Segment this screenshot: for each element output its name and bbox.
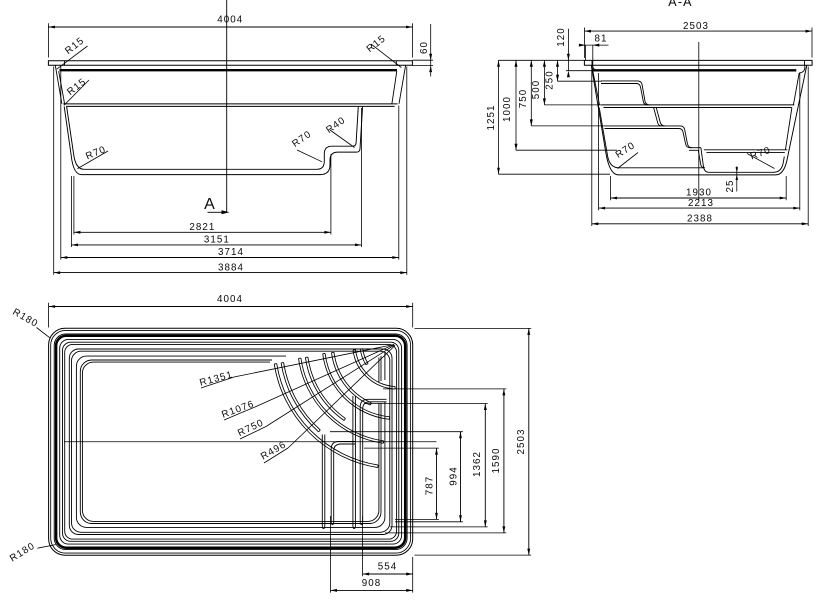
svg-text:3151: 3151 <box>204 235 230 246</box>
svg-text:A-A: A-A <box>668 0 692 9</box>
svg-text:3884: 3884 <box>218 262 244 273</box>
svg-text:2821: 2821 <box>189 222 215 233</box>
svg-text:3714: 3714 <box>218 247 244 258</box>
svg-text:1000: 1000 <box>502 96 513 122</box>
svg-text:81: 81 <box>595 34 608 45</box>
svg-text:2503: 2503 <box>683 21 709 32</box>
svg-text:2388: 2388 <box>687 214 713 225</box>
svg-text:4004: 4004 <box>217 294 243 305</box>
svg-text:1590: 1590 <box>491 448 502 474</box>
svg-text:500: 500 <box>531 80 542 100</box>
svg-text:250: 250 <box>545 70 556 90</box>
svg-text:554: 554 <box>378 562 398 573</box>
svg-text:994: 994 <box>449 466 460 486</box>
svg-text:1362: 1362 <box>472 451 483 477</box>
svg-text:2213: 2213 <box>688 198 714 209</box>
svg-text:4004: 4004 <box>217 14 243 25</box>
svg-text:2503: 2503 <box>516 429 527 455</box>
svg-text:908: 908 <box>362 578 382 589</box>
svg-text:A: A <box>204 196 215 213</box>
svg-text:1251: 1251 <box>486 105 497 131</box>
svg-text:120: 120 <box>556 27 567 47</box>
svg-text:750: 750 <box>518 89 529 109</box>
svg-text:25: 25 <box>725 180 736 193</box>
svg-text:787: 787 <box>425 476 436 496</box>
svg-text:60: 60 <box>419 41 430 54</box>
